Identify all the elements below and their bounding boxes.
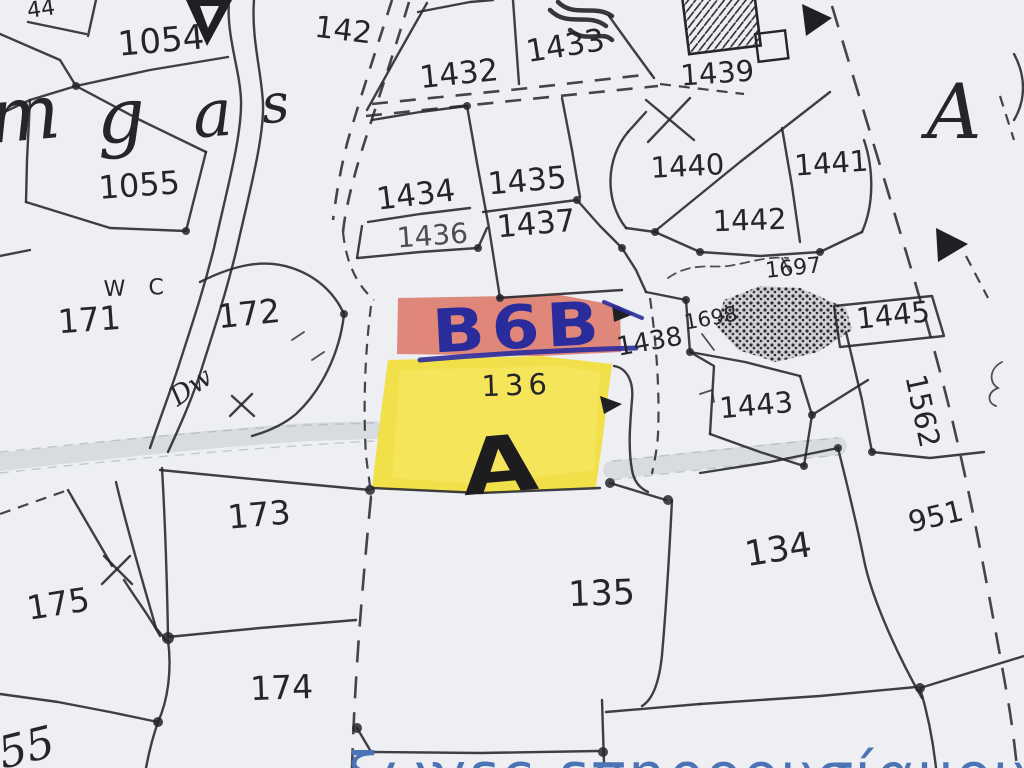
parcel-1055: 1055 xyxy=(97,163,181,207)
blue-pen-text: B6B xyxy=(430,289,607,368)
parcel-173: 173 xyxy=(226,492,292,536)
partial-44: 44 xyxy=(25,0,56,24)
node-dot xyxy=(663,495,673,505)
node-dot xyxy=(686,348,694,356)
parcel-1441: 1441 xyxy=(793,143,869,182)
script-m: m xyxy=(0,66,63,161)
parcel-171: 171 xyxy=(56,298,122,341)
script-g: g xyxy=(94,70,147,161)
node-dot xyxy=(682,296,690,304)
parcel-1435: 1435 xyxy=(486,160,568,203)
script-A: A xyxy=(921,67,982,156)
cadastral-map-scan: 1054105544142143214331434143514361437143… xyxy=(0,0,1024,768)
parcel-1054: 1054 xyxy=(116,17,206,64)
node-dot xyxy=(474,244,482,252)
bottom-cutoff-text: ξωγες επηροουσίαμου xyxy=(347,740,1024,768)
parcel-1436: 1436 xyxy=(396,217,469,255)
parcel-1440: 1440 xyxy=(650,147,725,185)
node-dot xyxy=(72,82,80,90)
parcel-1442: 1442 xyxy=(712,202,787,239)
node-dot xyxy=(365,485,375,495)
building-outline xyxy=(682,0,761,54)
yellow-letter-A: A xyxy=(458,417,541,514)
node-dot xyxy=(696,248,704,256)
node-dot xyxy=(915,683,925,693)
node-dot xyxy=(868,448,876,456)
node-dot xyxy=(800,462,808,470)
parcel-136: 136 xyxy=(481,367,553,403)
node-dot xyxy=(651,228,659,236)
node-dot xyxy=(162,632,174,644)
parcel-1443: 1443 xyxy=(718,385,794,425)
parcel-174: 174 xyxy=(249,667,313,708)
parcel-142: 142 xyxy=(313,10,374,52)
parcel-135: 135 xyxy=(568,573,636,615)
parcel-172: 172 xyxy=(215,291,282,336)
parcel-1439: 1439 xyxy=(679,53,755,92)
script-a: a xyxy=(190,74,235,154)
node-dot xyxy=(605,478,615,488)
node-dot xyxy=(182,227,190,235)
parcel-1437: 1437 xyxy=(495,203,577,246)
node-dot xyxy=(153,717,163,727)
node-dot xyxy=(618,244,626,252)
label-wc: W C xyxy=(103,275,172,302)
node-dot xyxy=(352,723,362,733)
node-dot xyxy=(834,444,842,452)
map-canvas: 1054105544142143214331434143514361437143… xyxy=(0,0,1024,768)
node-dot xyxy=(463,102,471,110)
node-dot xyxy=(573,196,581,204)
node-dot xyxy=(808,411,816,419)
node-dot xyxy=(340,310,348,318)
